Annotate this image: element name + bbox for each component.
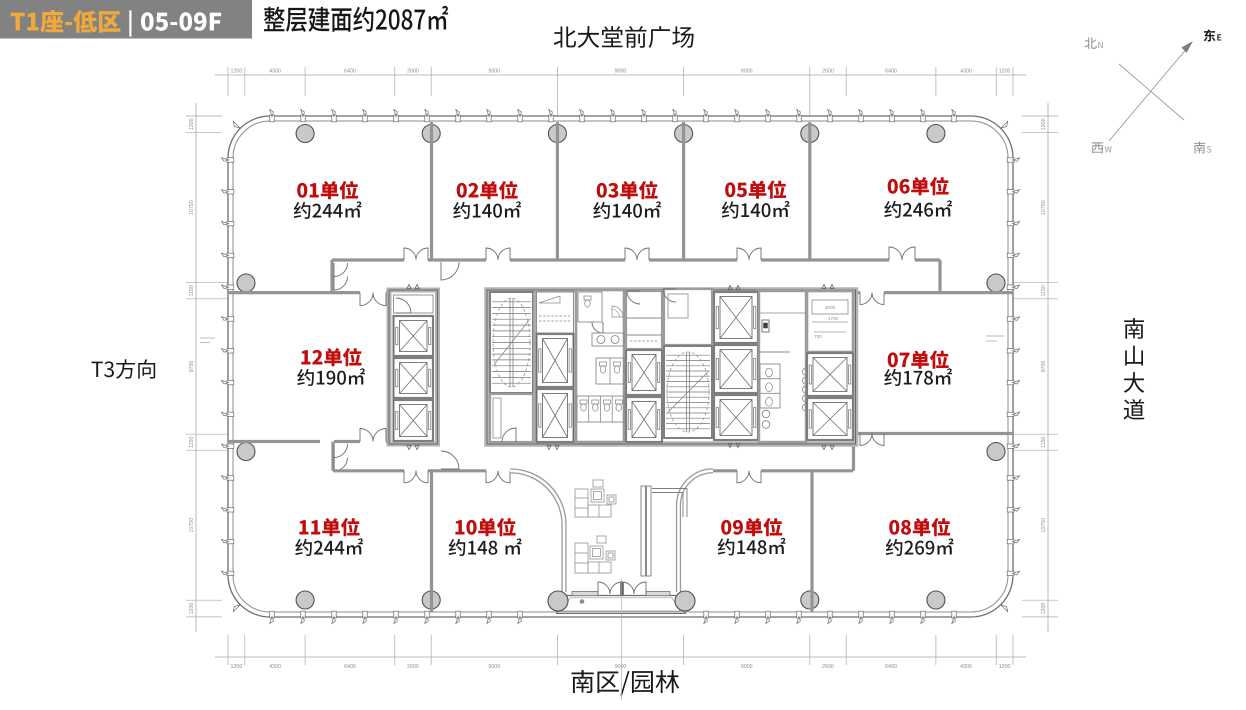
svg-text:1150: 1150 [189,436,195,447]
svg-text:10750: 10750 [1041,200,1047,215]
svg-text:4300: 4300 [960,69,972,75]
svg-text:1200: 1200 [1041,118,1047,130]
svg-text:4300: 4300 [269,664,281,670]
svg-text:2600: 2600 [407,664,419,670]
svg-text:4300: 4300 [960,664,972,670]
svg-text:1200: 1200 [231,69,243,75]
svg-text:9000: 9000 [488,69,500,75]
svg-text:1200: 1200 [999,69,1011,75]
svg-text:6400: 6400 [344,664,356,670]
svg-text:4300: 4300 [269,69,281,75]
svg-text:1150: 1150 [1041,436,1047,447]
svg-text:9700: 9700 [1041,361,1047,373]
svg-text:2600: 2600 [407,69,419,75]
svg-text:9000: 9000 [615,69,627,75]
svg-text:9000: 9000 [615,664,627,670]
svg-text:6400: 6400 [885,664,897,670]
svg-text:1150: 1150 [1041,285,1047,296]
svg-text:1200: 1200 [231,664,243,670]
svg-text:9000: 9000 [741,69,753,75]
svg-text:700: 700 [814,334,822,339]
svg-text:3000: 3000 [825,305,836,310]
svg-text:1700: 1700 [828,316,839,321]
svg-text:2600: 2600 [822,69,834,75]
svg-text:9000: 9000 [488,664,500,670]
svg-text:10750: 10750 [189,200,195,215]
svg-text:6400: 6400 [344,69,356,75]
svg-text:1200: 1200 [189,603,195,615]
svg-text:1150: 1150 [189,285,195,296]
svg-text:1200: 1200 [189,118,195,130]
svg-text:2600: 2600 [822,664,834,670]
svg-text:6400: 6400 [885,69,897,75]
svg-text:10750: 10750 [189,518,195,533]
svg-text:9700: 9700 [189,361,195,373]
svg-text:1200: 1200 [1041,603,1047,615]
svg-text:9000: 9000 [741,664,753,670]
svg-text:10750: 10750 [1041,518,1047,533]
svg-text:1200: 1200 [999,664,1011,670]
